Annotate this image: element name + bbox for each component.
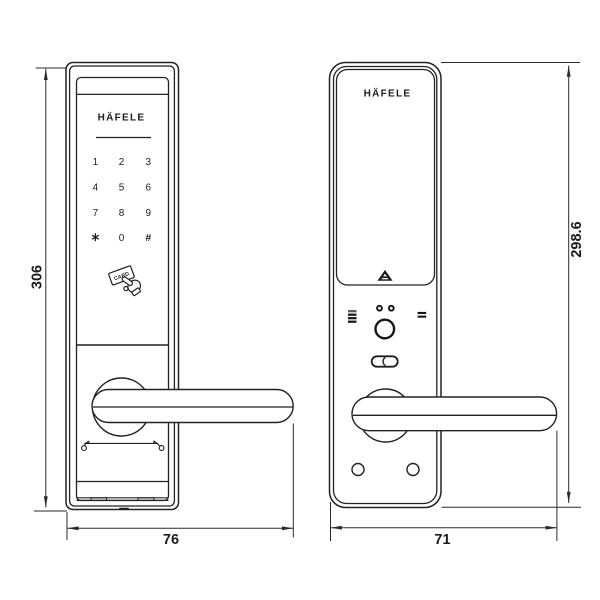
svg-text:2: 2 [119,157,125,168]
svg-text:HÄFELE: HÄFELE [364,86,412,99]
svg-text:4: 4 [93,183,99,194]
svg-text:HÄFELE: HÄFELE [98,111,146,124]
svg-text:306: 306 [30,265,46,289]
svg-text:3: 3 [146,157,152,168]
svg-text:8: 8 [119,208,125,219]
svg-text:1: 1 [93,157,99,168]
svg-text:5: 5 [119,183,125,194]
svg-text:71: 71 [434,532,450,548]
svg-text:76: 76 [163,532,179,548]
svg-text:7: 7 [93,208,99,219]
svg-text:#: # [145,232,151,244]
svg-text:9: 9 [146,208,152,219]
svg-text:0: 0 [119,233,125,244]
svg-text:6: 6 [146,183,152,194]
svg-text:298.6: 298.6 [569,221,585,257]
